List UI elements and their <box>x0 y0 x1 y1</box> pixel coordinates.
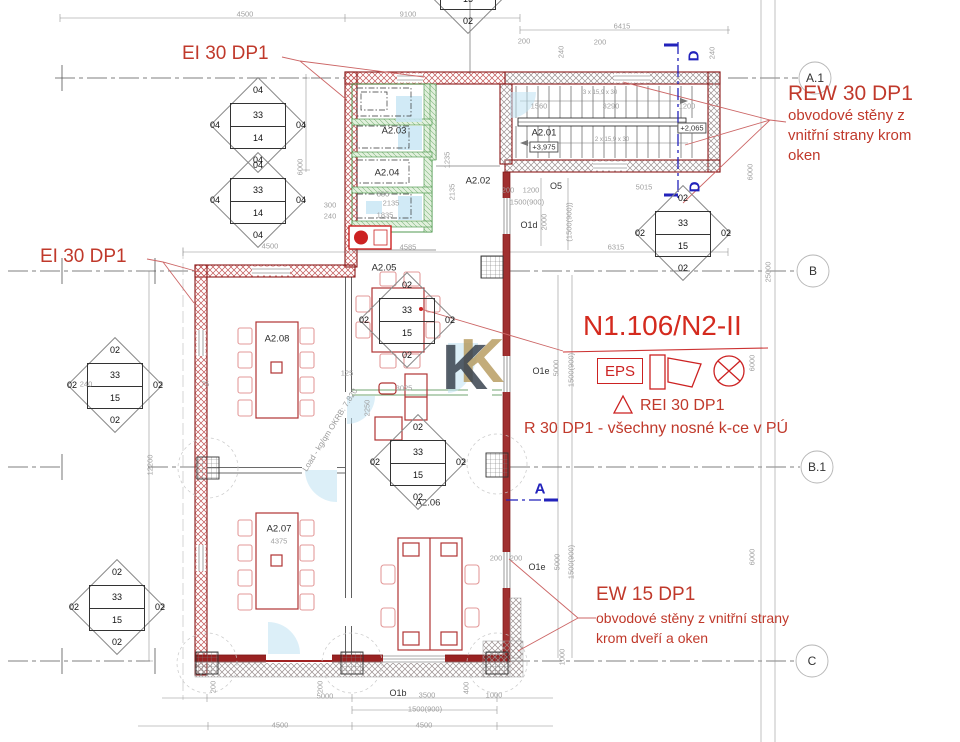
stair-note-bottom: 2 x 15,9 x 30 <box>595 137 629 143</box>
floor-plan-canvas: K K EI 30 DP1 EI 30 DP1 REW 30 DP1 obvod… <box>0 0 960 742</box>
label-ei30-top: EI 30 DP1 <box>182 43 269 65</box>
dim: 6000 <box>296 159 305 176</box>
label-fire-zone: N1.106/N2-II <box>583 310 742 342</box>
dim: 2135 <box>383 199 400 208</box>
dim: 1500(900) <box>567 353 576 387</box>
opening-o1d: O1d <box>520 220 537 230</box>
label-rew30-line2: vnitřní strany krom <box>788 126 911 146</box>
grid-label-c: C <box>808 654 817 668</box>
label-ew15-line2: krom dveří a oken <box>596 628 708 648</box>
dim: 3025 <box>396 384 413 393</box>
dim: 400 <box>462 682 471 695</box>
dim: 240 <box>557 46 566 59</box>
dim-a207: 4375 <box>271 537 288 546</box>
dim: 240 <box>80 380 93 389</box>
diamond-marker: 3315 0202 0202 <box>359 272 455 368</box>
dim: 240 <box>708 47 717 60</box>
opening-o5: O5 <box>550 181 562 191</box>
room-a204: A2.04 <box>375 168 400 179</box>
opening-o1e-upper: O1e <box>532 366 549 376</box>
dim: 200 <box>518 37 531 46</box>
diamond-marker: 3315 0202 0202 <box>370 414 466 510</box>
opening-o1b: O1b <box>389 688 406 698</box>
dim: 6000 <box>746 164 755 181</box>
label-rei30: REI 30 DP1 <box>640 396 724 416</box>
dim: 9100 <box>400 10 417 19</box>
dim: 75 <box>201 380 209 389</box>
label-ew15-line1: obvodové stěny z vnitřní strany <box>596 608 789 628</box>
dim: 5000 <box>553 554 562 571</box>
label-rew30-title: REW 30 DP1 <box>788 82 913 106</box>
section-d-top: D <box>686 51 703 62</box>
diamond-marker: 3315 0202 0202 <box>635 185 731 281</box>
dim: 1200 <box>679 102 696 111</box>
label-ew15-title: EW 15 DP1 <box>596 584 695 606</box>
dim: 6000 <box>748 549 757 566</box>
dim: 6415 <box>614 22 631 31</box>
dim: 5015 <box>636 183 653 192</box>
dim: 5000 <box>552 360 561 377</box>
dim: 1235 <box>443 152 452 169</box>
label-rew30-line1: obvodové stěny z <box>788 106 905 126</box>
dim: 4585 <box>400 243 417 252</box>
label-ei30-left: EI 30 DP1 <box>40 246 127 268</box>
diamond-marker-partial: 3315 0202 0202 <box>420 0 516 34</box>
dim: 1200 <box>523 186 540 195</box>
dim: 1500(900) <box>567 545 576 579</box>
dim: 4500 <box>272 721 289 730</box>
dim: 200 <box>594 38 607 47</box>
dim: 6315 <box>608 243 625 252</box>
room-a208: A2.08 <box>265 334 290 345</box>
diamond-marker: 3314 0404 0404 <box>210 152 306 248</box>
room-a203: A2.03 <box>382 126 407 137</box>
dim: 1560 <box>531 102 548 111</box>
dim: 200 <box>209 681 218 694</box>
label-r30: R 30 DP1 - všechny nosné k-ce v PÚ <box>524 419 788 439</box>
dim: 1000 <box>486 691 503 700</box>
wall-right <box>483 172 523 677</box>
dim: 4500 <box>262 242 279 251</box>
dim: (1500(900)) <box>565 202 574 241</box>
dim: 1835 <box>377 211 394 220</box>
level-a201: +3,975 <box>529 142 558 153</box>
dim: 6000 <box>748 355 757 372</box>
dim: 885 <box>377 190 390 199</box>
room-a201: A2.01 <box>532 128 557 139</box>
dim: 1000 <box>558 649 567 666</box>
dim: 1500(900) <box>510 198 544 207</box>
dim: 25000 <box>764 262 773 283</box>
dim: 1500(900) <box>408 705 442 714</box>
dim: 300 <box>324 201 337 210</box>
dim: 4500 <box>237 10 254 19</box>
dim: 12200 <box>146 455 155 476</box>
section-a: A <box>535 481 546 498</box>
dim: 240 <box>324 212 337 221</box>
dim: 2250 <box>363 400 372 417</box>
dim: 125 <box>341 369 354 378</box>
wc-block <box>349 84 436 249</box>
diamond-marker: 3315 0202 0202 <box>69 559 165 655</box>
grid-label-b1: B.1 <box>808 460 826 474</box>
opening-o1e-lower: O1e <box>528 562 545 572</box>
dim: 200 <box>316 681 325 694</box>
grid-label-a1: A.1 <box>806 71 824 85</box>
zone-underline <box>563 348 768 352</box>
dim: 2000 <box>540 214 549 231</box>
eps-box: EPS <box>597 358 643 384</box>
label-rew30-line3: oken <box>788 146 821 166</box>
dim: 200 <box>490 554 503 563</box>
dim: 200 <box>510 554 523 563</box>
dim: 200 <box>502 186 515 195</box>
grid-label-b: B <box>809 264 817 278</box>
room-a207: A2.07 <box>267 524 292 535</box>
room-a202: A2.02 <box>466 176 491 187</box>
dim: 3290 <box>603 102 620 111</box>
level-stair: +2,065 <box>677 123 706 134</box>
dim: 4500 <box>416 721 433 730</box>
dim: 2135 <box>448 184 457 201</box>
dim: 3500 <box>419 691 436 700</box>
stair-note-top: 3 x 15,9 x 30 <box>583 90 617 96</box>
